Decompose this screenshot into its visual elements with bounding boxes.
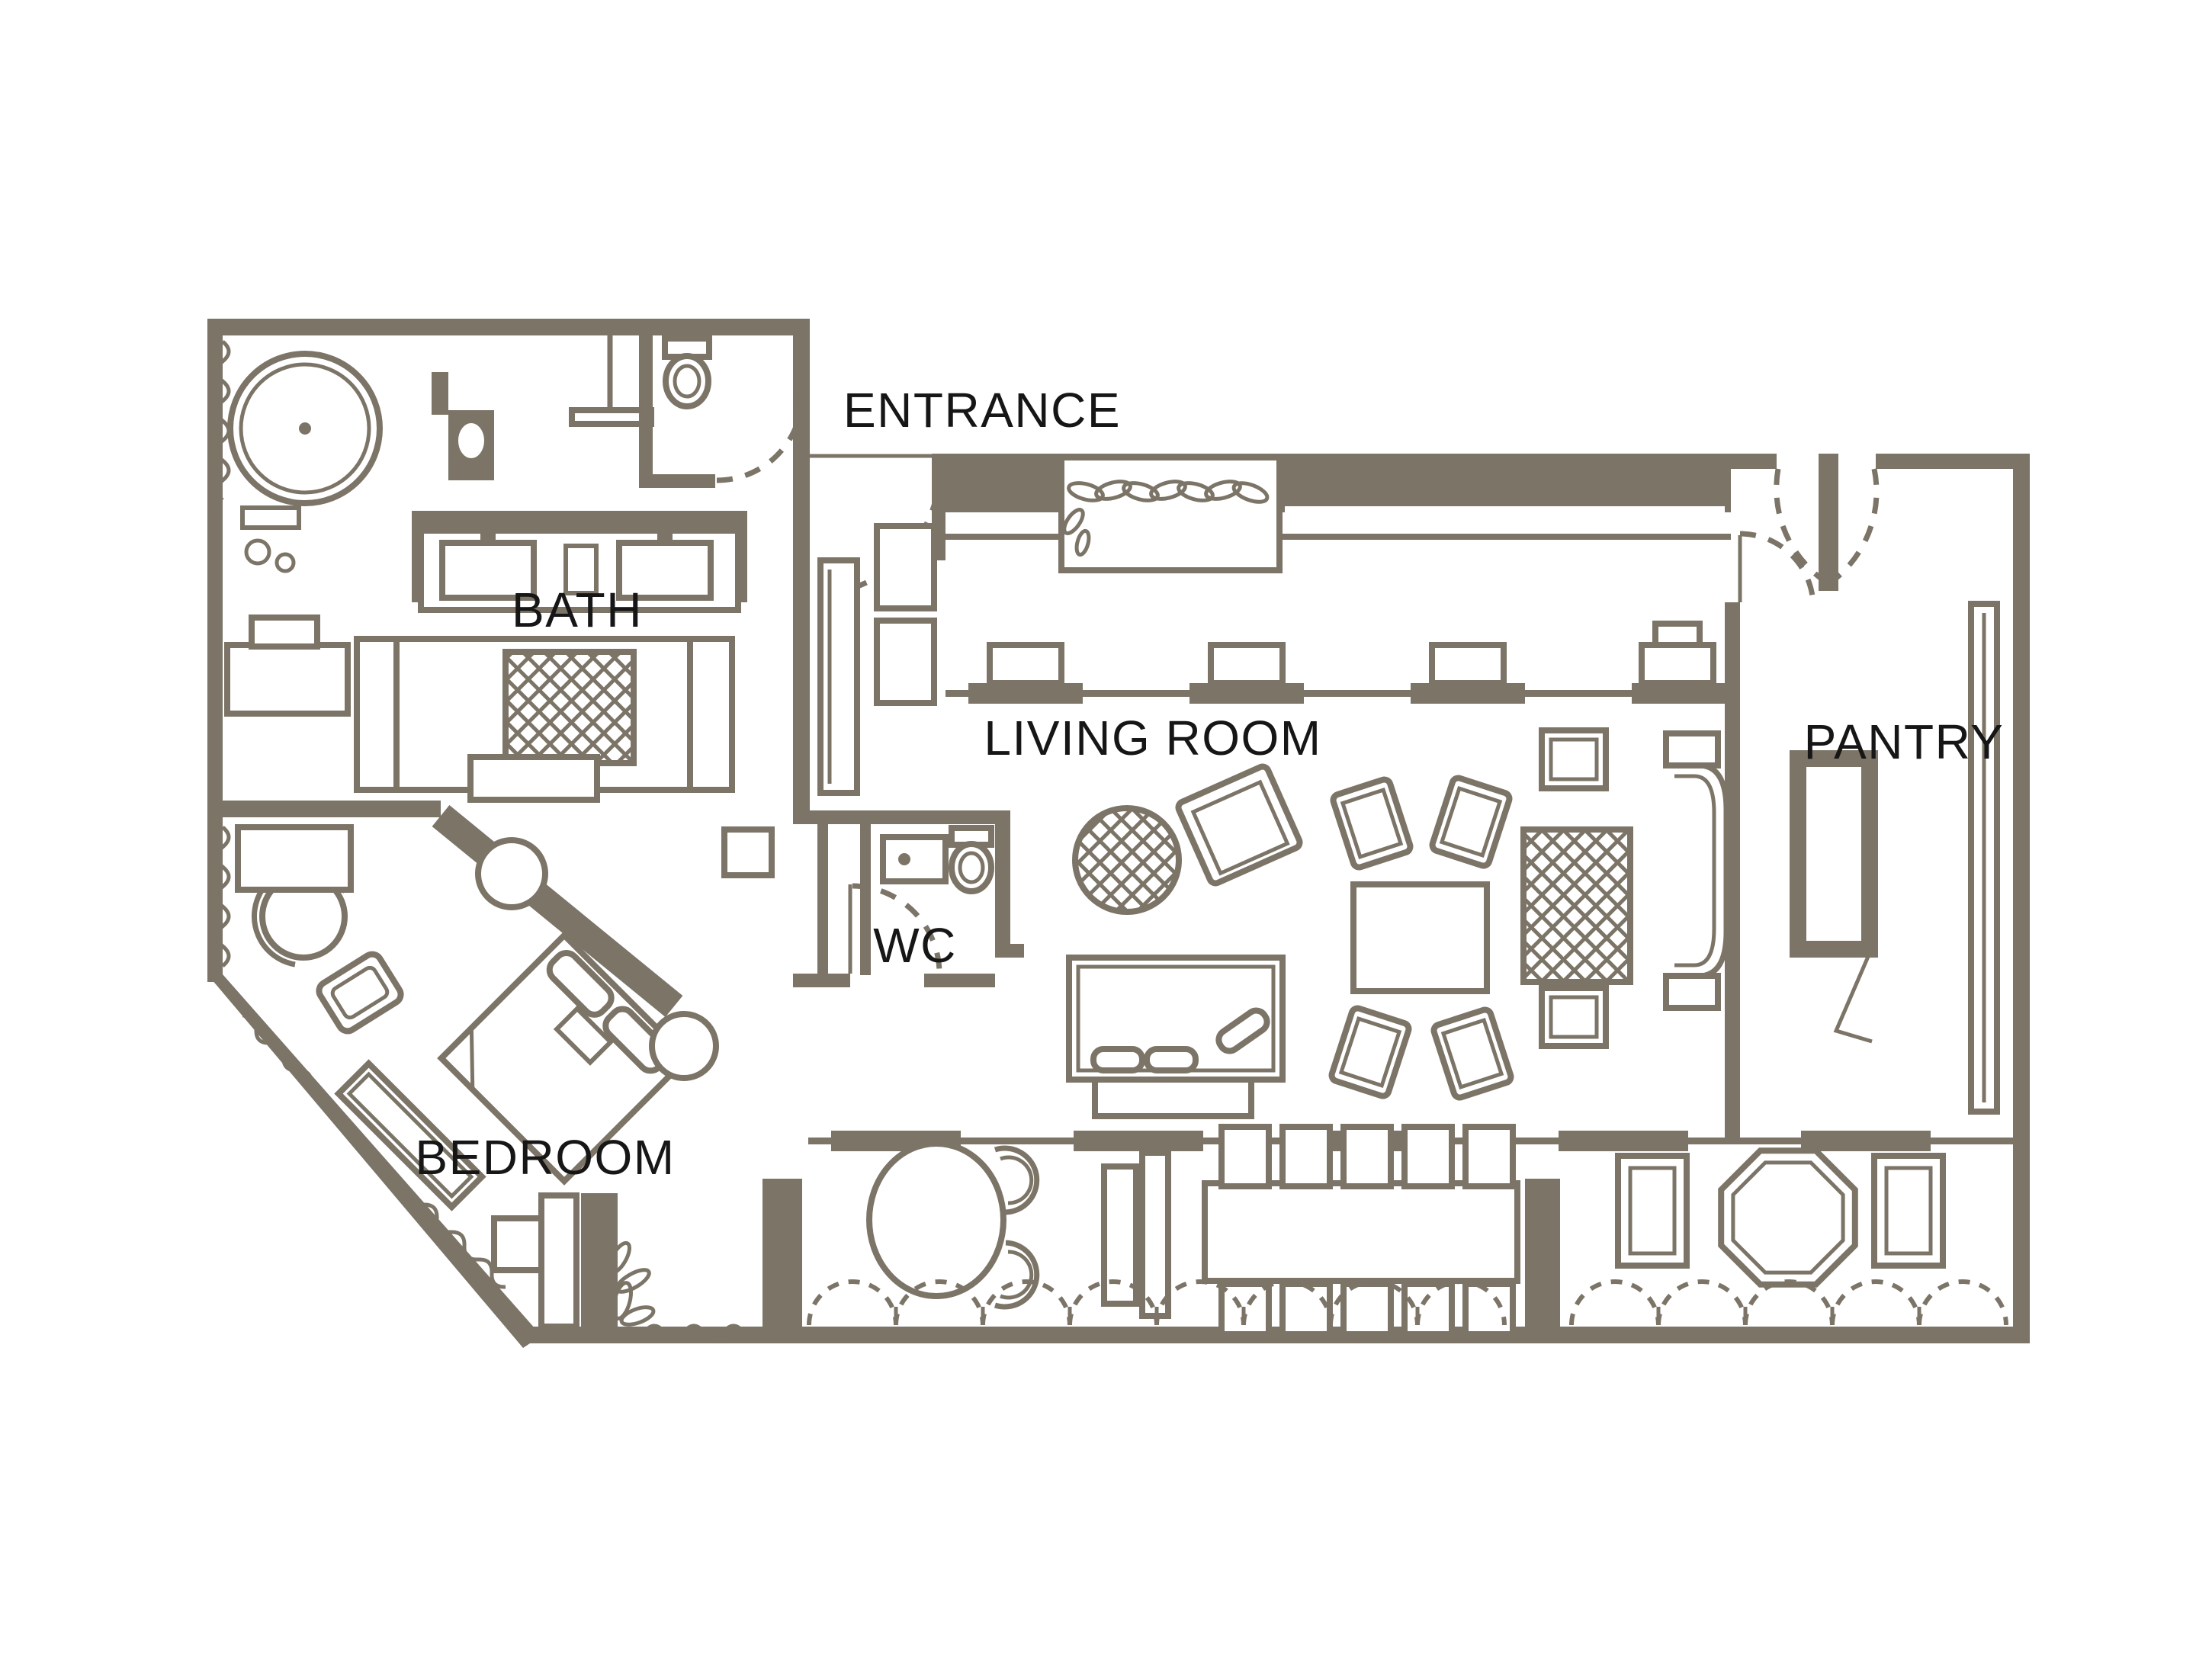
console-garland	[1061, 457, 1279, 570]
room-label-living-room: LIVING ROOM	[984, 711, 1321, 765]
upper-partition-track	[945, 624, 1731, 704]
pedestal-sink	[432, 372, 494, 480]
bath-bottom-wall	[207, 801, 441, 817]
room-label-bath: BATH	[512, 582, 643, 637]
dining-table-long	[1205, 1183, 1517, 1281]
bath-storage-unit	[357, 639, 732, 800]
room-label-entrance: ENTRANCE	[843, 383, 1121, 438]
coffee-table-round	[1075, 808, 1179, 912]
bedroom-dresser	[238, 827, 351, 890]
folding-screen	[1104, 1153, 1168, 1316]
bath-cabinet-left	[227, 618, 348, 714]
bedroom-ottoman	[316, 951, 404, 1035]
game-table	[1353, 884, 1487, 991]
sofa	[1069, 958, 1283, 1116]
room-label-pantry: PANTRY	[1804, 714, 2005, 769]
bath-accessories	[242, 508, 299, 571]
lounge-chair	[1177, 765, 1302, 885]
hall	[820, 454, 945, 793]
toilet-room	[639, 335, 802, 488]
curved-settee	[1666, 733, 1726, 1008]
pantry-shelving	[1971, 604, 1997, 1112]
floor-plan-page: ENTRANCE BATH LIVING ROOM PANTRY WC BEDR…	[0, 0, 2212, 1659]
living-rug	[1523, 829, 1630, 982]
floor-plan-svg: ENTRANCE BATH LIVING ROOM PANTRY WC BEDR…	[0, 0, 2212, 1659]
bathtub	[230, 354, 380, 503]
room-label-wc: WC	[873, 918, 957, 973]
pantry-counter	[1798, 759, 1872, 1041]
octagon-table	[1721, 1150, 1855, 1285]
room-label-bedroom: BEDROOM	[415, 1130, 675, 1185]
